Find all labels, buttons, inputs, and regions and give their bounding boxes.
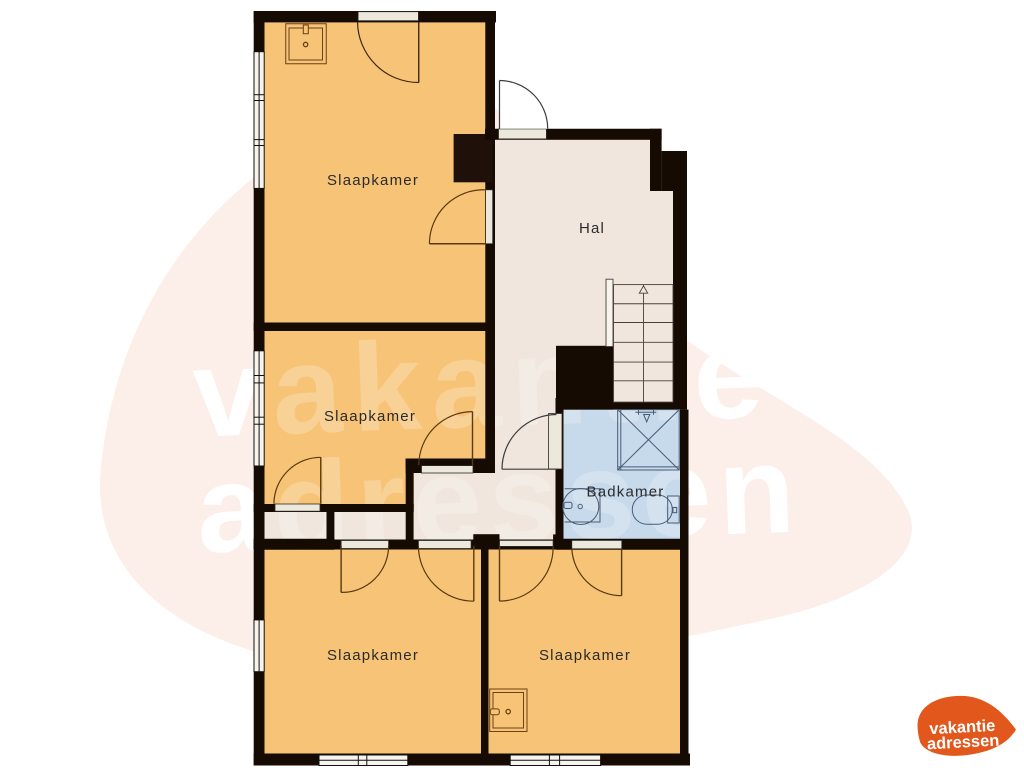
svg-text:Slaapkamer: Slaapkamer: [327, 172, 419, 189]
svg-text:Slaapkamer: Slaapkamer: [539, 647, 631, 664]
svg-text:Badkamer: Badkamer: [587, 484, 665, 501]
svg-text:Slaapkamer: Slaapkamer: [324, 408, 416, 425]
svg-text:Slaapkamer: Slaapkamer: [327, 647, 419, 664]
svg-text:adressen: adressen: [926, 732, 999, 754]
svg-text:Hal: Hal: [579, 220, 605, 237]
